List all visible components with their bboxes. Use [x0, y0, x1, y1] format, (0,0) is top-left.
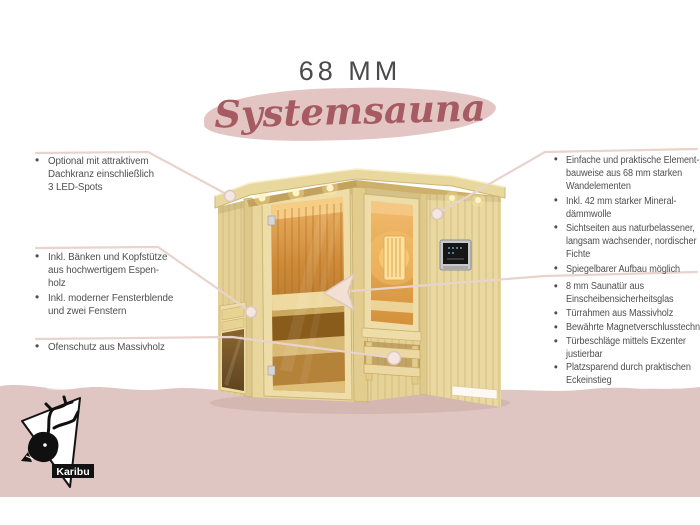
- feature-item: Spiegelbarer Aufbau möglich: [553, 263, 700, 276]
- sauna: [210, 169, 510, 414]
- right-corner-post: [420, 192, 427, 395]
- control-panel: [440, 240, 471, 270]
- callout-dot-window: [246, 307, 257, 318]
- door-hinge: [268, 366, 275, 375]
- feature-item: Türbeschläge mittels Exzenter justierbar: [553, 336, 700, 362]
- feature-item: Inkl. 42 mm starker Mineral- dämmwolle: [553, 195, 700, 221]
- feature-block-roof: Optional mit attraktivem Dachkranz einsc…: [34, 155, 229, 196]
- feature-block-interior: Inkl. Bänken und Kopfstütze aus hochwert…: [34, 251, 229, 319]
- feature-item: Bewährte Magnetverschlusstechnik: [553, 322, 700, 335]
- right-wall: [424, 193, 501, 407]
- feature-block-ovenguard: Ofenschutz aus Massivholz: [34, 341, 229, 355]
- feature-item: Inkl. moderner Fensterblende und zwei Fe…: [34, 292, 229, 318]
- brand-label: Karibu: [56, 466, 89, 478]
- callout-dot-wall: [432, 209, 443, 220]
- feature-item: Platzsparend durch praktischen Eckeinsti…: [553, 362, 700, 388]
- control-display: [443, 243, 468, 264]
- sauna-lamp: [384, 236, 405, 280]
- product-sheet: Karibu 68 MM Systemsauna Optional mit at…: [0, 0, 700, 525]
- feature-item: 8 mm Saunatür aus Einscheibensicherheits…: [553, 281, 700, 307]
- feature-item: Optional mit attraktivem Dachkranz einsc…: [34, 155, 229, 195]
- front-window: [364, 194, 421, 332]
- feature-block-door: 8 mm Saunatür aus Einscheibensicherheits…: [553, 281, 700, 389]
- feature-block-walls: Einfache und praktische Element- bauweis…: [553, 154, 700, 277]
- feature-item: Inkl. Bänken und Kopfstütze aus hochwert…: [34, 251, 229, 291]
- feature-item: Einfache und praktische Element- bauweis…: [553, 154, 700, 194]
- callout-dot-ovenguard: [388, 352, 401, 365]
- feature-item: Sichtseiten aus naturbelassener, langsam…: [553, 222, 700, 262]
- feature-item: Ofenschutz aus Massivholz: [34, 341, 229, 354]
- feature-item: Türrahmen aus Massivholz: [553, 308, 700, 321]
- door-hinge: [268, 216, 275, 225]
